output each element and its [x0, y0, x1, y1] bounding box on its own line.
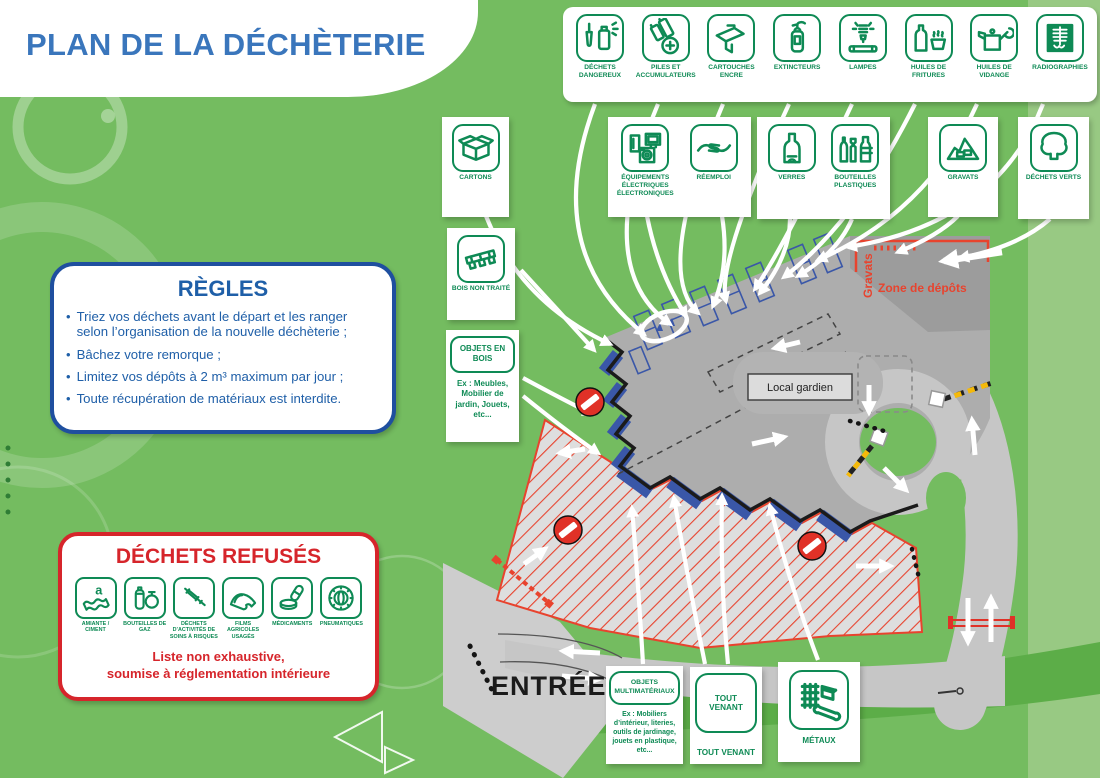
objets-multimateriaux-title: OBJETS MULTIMATÉRIAUX [609, 671, 680, 705]
waste-type-label: MÉTAUX [802, 736, 835, 746]
huiles-fritures-icon [905, 14, 953, 62]
tout-venant-box: TOUT VENANT [695, 673, 757, 733]
zone-depots-label: Zone de dépôts [878, 281, 967, 295]
triangle-decor [335, 712, 413, 773]
reemploi-icon [690, 124, 738, 172]
page-title: PLAN DE LA DÉCHÈTERIE [26, 27, 478, 63]
rule-item: •Toute récupération de matériaux est int… [66, 391, 380, 406]
waste-type-huiles-vidange: HUILES DE VIDANGE [962, 14, 1026, 80]
waste-type-label: CARTOUCHES ENCRE [699, 64, 763, 80]
rule-item: •Triez vos déchets avant le départ et le… [66, 309, 380, 340]
medicaments-icon [271, 577, 313, 619]
card-cartons: CARTONS [442, 117, 509, 217]
radiographies-icon [1036, 14, 1084, 62]
dechets-dangereux-icon [576, 14, 624, 62]
waste-type-verres: VERRES [761, 124, 823, 182]
refused-waste-box: DÉCHETS REFUSÉS aAMIANTE / CIMENTBOUTEIL… [58, 532, 379, 701]
metaux-icon [789, 670, 849, 730]
waste-type-radiographies: RADIOGRAPHIES [1028, 14, 1092, 72]
waste-type-label: PILES ET ACCUMULATEURS [634, 64, 698, 80]
films-agricoles-icon [222, 577, 264, 619]
waste-type-label: BOIS NON TRAITÉ [452, 285, 510, 293]
waste-type-label: GRAVATS [948, 174, 979, 182]
rules-list: •Triez vos déchets avant le départ et le… [66, 309, 380, 407]
waste-type-pneumatiques: PNEUMATIQUES [317, 577, 366, 640]
waste-type-medicaments: MÉDICAMENTS [268, 577, 317, 640]
piles-accumulateurs-icon [642, 14, 690, 62]
waste-type-label: DÉCHETS D’ACTIVITÉS DE SOINS À RISQUES [169, 621, 218, 640]
tout-venant-label: TOUT VENANT [695, 748, 757, 757]
waste-type-amiante-ciment: aAMIANTE / CIMENT [71, 577, 120, 640]
waste-type-dechets-soins-risques: DÉCHETS D’ACTIVITÉS DE SOINS À RISQUES [169, 577, 218, 640]
waste-type-label: VERRES [778, 174, 805, 182]
rule-item: •Bâchez votre remorque ; [66, 347, 380, 362]
waste-type-metaux: MÉTAUX [778, 662, 860, 746]
waste-type-reemploi: RÉEMPLOI [683, 124, 745, 182]
top-icon-strip: DÉCHETS DANGEREUXPILES ET ACCUMULATEURSC… [563, 7, 1097, 102]
waste-type-dechets-verts: DÉCHETS VERTS [1023, 124, 1085, 182]
waste-type-label: HUILES DE FRITURES [897, 64, 961, 80]
card-dechets-verts: DÉCHETS VERTS [1018, 117, 1089, 219]
waste-type-huiles-fritures: HUILES DE FRITURES [897, 14, 961, 80]
objets-en-bois-example: Ex : Meubles, Mobilier de jardin, Jouets… [450, 379, 515, 421]
bouteilles-plastiques-icon [831, 124, 879, 172]
waste-type-dechets-dangereux: DÉCHETS DANGEREUX [568, 14, 632, 80]
waste-type-films-agricoles: FILMS AGRICOLES USAGÉS [219, 577, 268, 640]
objets-multimateriaux-example: Ex : Mobiliers d’intérieur, literies, ou… [609, 711, 680, 756]
title-banner: PLAN DE LA DÉCHÈTERIE [0, 0, 478, 97]
waste-type-bouteilles-de-gaz: BOUTEILLES DE GAZ [120, 577, 169, 640]
card-bois-non-traite: BOIS NON TRAITÉ [447, 228, 515, 320]
card-objets-multimateriaux: OBJETS MULTIMATÉRIAUX Ex : Mobiliers d’i… [606, 666, 683, 764]
waste-type-bois-non-traite: BOIS NON TRAITÉ [450, 235, 512, 293]
cartouches-encre-icon [707, 14, 755, 62]
card-verres-bouteilles: VERRESBOUTEILLES PLASTIQUES [757, 117, 890, 219]
waste-type-label: PNEUMATIQUES [320, 621, 363, 627]
verres-icon [768, 124, 816, 172]
waste-type-piles-accumulateurs: PILES ET ACCUMULATEURS [634, 14, 698, 80]
pneumatiques-icon [320, 577, 362, 619]
dechets-verts-icon [1030, 124, 1078, 172]
waste-type-label: DÉCHETS DANGEREUX [568, 64, 632, 80]
waste-type-label: CARTONS [459, 174, 491, 182]
equipements-electriques-icon [621, 124, 669, 172]
waste-type-equipements-electriques: ÉQUIPEMENTS ÉLECTRIQUES ÉLECTRONIQUES [614, 124, 676, 198]
waste-type-label: RADIOGRAPHIES [1032, 64, 1088, 72]
bouteilles-de-gaz-icon [124, 577, 166, 619]
waste-type-label: ÉQUIPEMENTS ÉLECTRIQUES ÉLECTRONIQUES [614, 174, 676, 198]
rules-box: RÈGLES •Triez vos déchets avant le dépar… [50, 262, 396, 434]
objets-en-bois-title: OBJETS EN BOIS [450, 336, 515, 373]
dechets-soins-risques-icon [173, 577, 215, 619]
waste-type-cartouches-encre: CARTOUCHES ENCRE [699, 14, 763, 80]
card-objets-en-bois: OBJETS EN BOIS Ex : Meubles, Mobilier de… [446, 330, 519, 442]
gravats-label: Gravats [861, 253, 875, 298]
card-gravats: GRAVATS [928, 117, 998, 217]
amiante-ciment-icon: a [75, 577, 117, 619]
waste-type-bouteilles-plastiques: BOUTEILLES PLASTIQUES [824, 124, 886, 190]
card-metaux: MÉTAUX [778, 662, 860, 762]
waste-type-label: MÉDICAMENTS [272, 621, 312, 627]
waste-type-label: LAMPES [849, 64, 876, 72]
rules-title: RÈGLES [66, 276, 380, 302]
card-tout-venant: TOUT VENANT TOUT VENANT [690, 667, 762, 764]
waste-type-label: AMIANTE / CIMENT [71, 621, 120, 634]
gravats-icon [939, 124, 987, 172]
waste-type-label: DÉCHETS VERTS [1026, 174, 1081, 182]
refused-note: Liste non exhaustive,soumise à réglement… [68, 649, 369, 683]
bois-non-traite-icon [457, 235, 505, 283]
poster: Local gardien Gravats Zone de dépôts [0, 0, 1100, 778]
waste-type-gravats: GRAVATS [932, 124, 994, 182]
waste-type-label: FILMS AGRICOLES USAGÉS [219, 621, 268, 640]
huiles-vidange-icon [970, 14, 1018, 62]
waste-type-cartons: CARTONS [445, 124, 506, 182]
refused-title: DÉCHETS REFUSÉS [68, 545, 369, 569]
waste-type-label: RÉEMPLOI [697, 174, 731, 182]
card-equipements-reemploi: ÉQUIPEMENTS ÉLECTRIQUES ÉLECTRONIQUESRÉE… [608, 117, 751, 217]
svg-text:a: a [95, 582, 103, 597]
rule-item: •Limitez vos dépôts à 2 m³ maximum par j… [66, 369, 380, 384]
entrance-label: ENTRÉE [491, 671, 607, 702]
local-gardien-label: Local gardien [767, 382, 833, 394]
cartons-icon [452, 124, 500, 172]
lampes-icon [839, 14, 887, 62]
waste-type-label: HUILES DE VIDANGE [962, 64, 1026, 80]
waste-type-label: BOUTEILLES PLASTIQUES [824, 174, 886, 190]
extincteurs-icon [773, 14, 821, 62]
waste-type-label: BOUTEILLES DE GAZ [120, 621, 169, 634]
refused-icons: aAMIANTE / CIMENTBOUTEILLES DE GAZDÉCHET… [68, 577, 369, 640]
waste-type-extincteurs: EXTINCTEURS [765, 14, 829, 72]
waste-type-label: EXTINCTEURS [774, 64, 821, 72]
waste-type-lampes: LAMPES [831, 14, 895, 72]
